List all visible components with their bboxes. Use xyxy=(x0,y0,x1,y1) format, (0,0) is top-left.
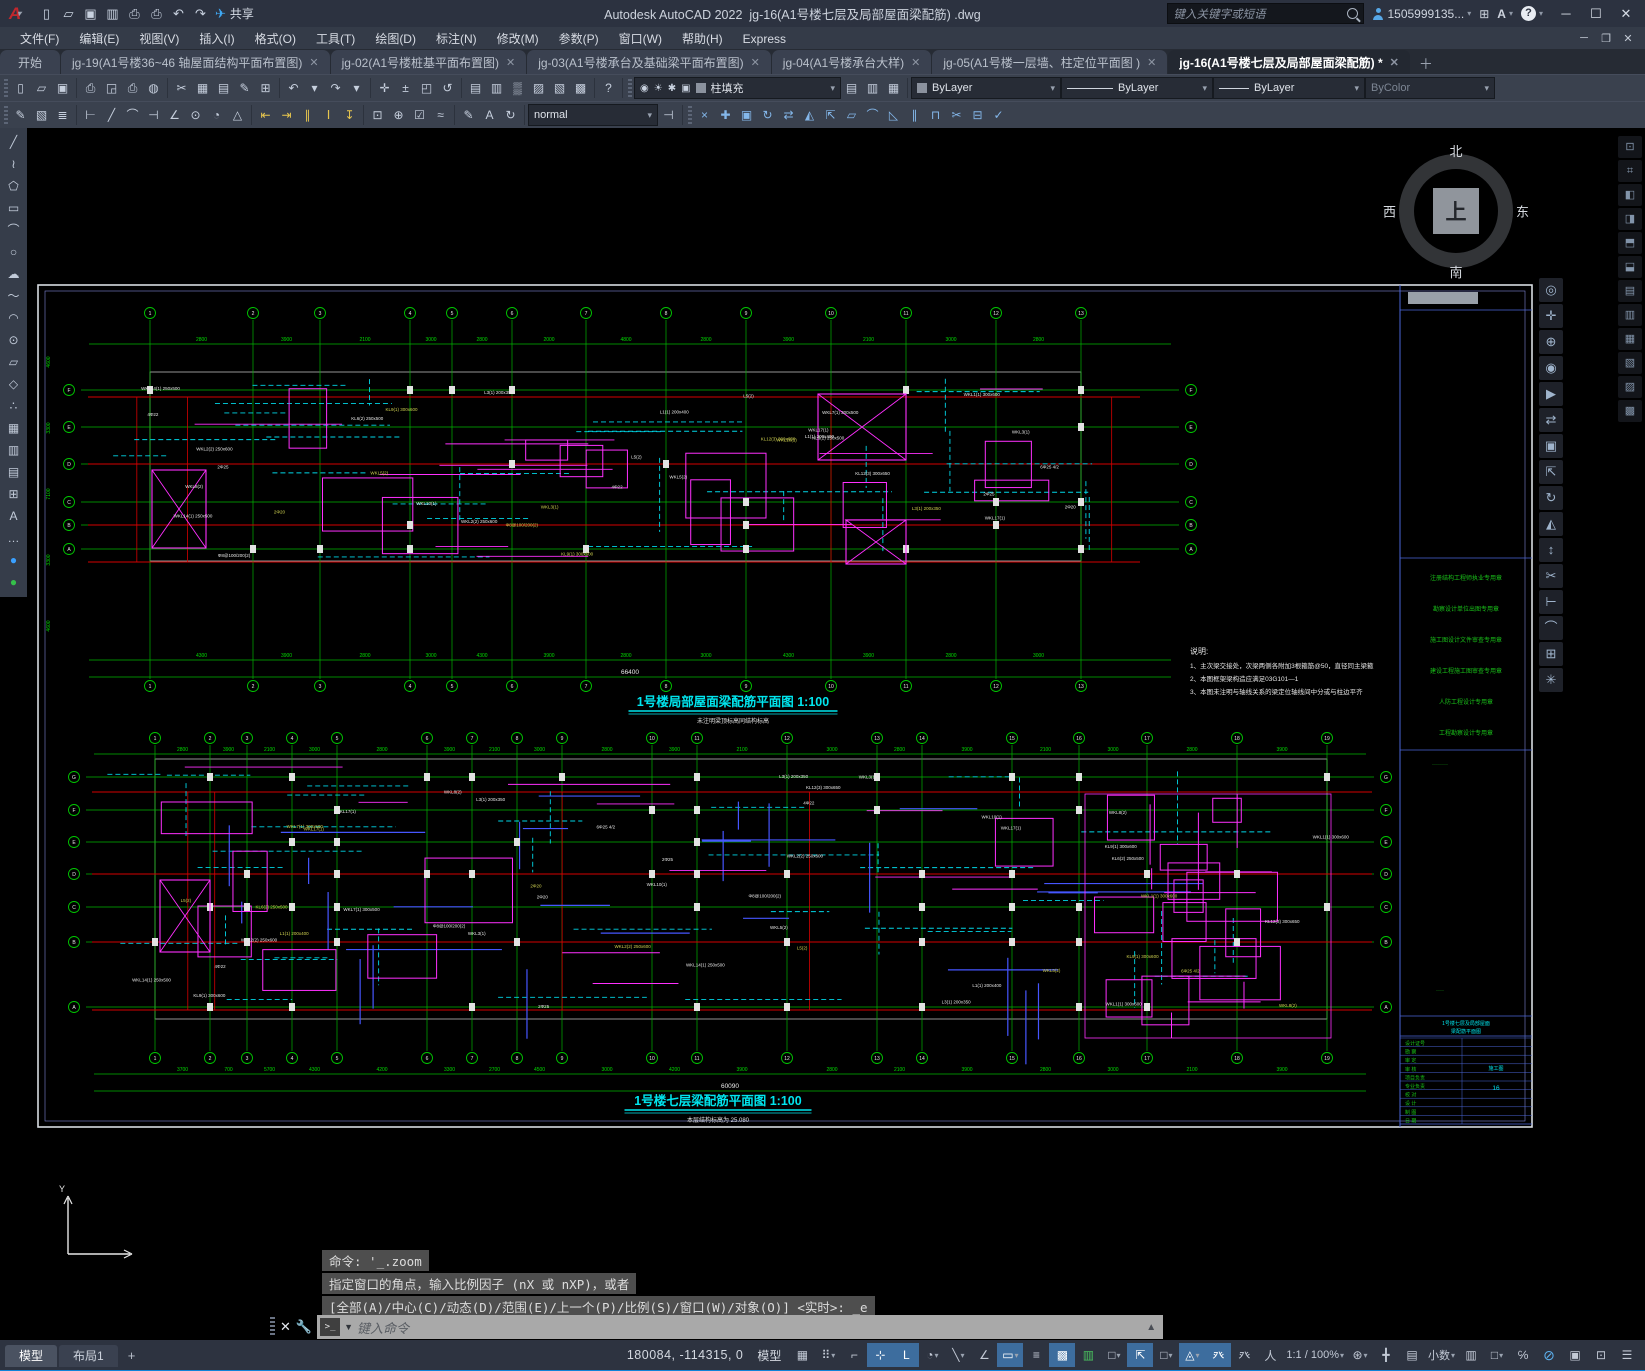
move-button[interactable]: ✚ xyxy=(715,105,736,126)
status-toggle-clean-screen[interactable]: ⊡ xyxy=(1588,1343,1614,1367)
close-button[interactable]: ✕ xyxy=(1611,6,1641,22)
open-button[interactable]: ▱ xyxy=(31,78,52,99)
zoom-previous-button[interactable]: ↺ xyxy=(437,78,458,99)
pan-hand-button[interactable]: ✛ xyxy=(1539,304,1563,328)
showmotion-button[interactable]: ▶ xyxy=(1539,382,1563,406)
nav-wheel-button[interactable]: ◎ xyxy=(1539,278,1563,302)
trim-button[interactable]: ⊓ xyxy=(925,105,946,126)
status-toggle-dynamic-ucs[interactable]: ⇱ xyxy=(1127,1343,1153,1367)
etransmit-button[interactable]: ◍ xyxy=(143,78,164,99)
status-toggle-gizmo[interactable]: ◬▾ xyxy=(1179,1343,1205,1367)
pan-button[interactable]: ✛ xyxy=(374,78,395,99)
mirror-button[interactable]: ⇄ xyxy=(778,105,799,126)
doc-tab-label: jg-03(A1号楼承台及基础梁平面布置图) xyxy=(538,54,743,71)
stretch-button[interactable]: ⇱ xyxy=(820,105,841,126)
svg-text:9: 9 xyxy=(745,684,748,690)
insert-block-tool[interactable]: ▱ xyxy=(2,352,25,373)
rectangle-tool[interactable]: ▭ xyxy=(2,198,25,219)
toolbar-grip[interactable] xyxy=(688,106,692,124)
status-toggle-units[interactable]: 小数▾ xyxy=(1425,1343,1458,1367)
close-icon[interactable]: ✕ xyxy=(280,1319,291,1335)
svg-text:4300: 4300 xyxy=(783,653,794,659)
layer-on-icon: ◉ xyxy=(640,83,649,94)
layer-prev-button[interactable]: ▤ xyxy=(841,78,862,99)
layer-dropdown[interactable]: ◉☀✱▣柱填充▾ xyxy=(634,77,841,99)
panel-8-button[interactable]: ▥ xyxy=(1618,304,1642,326)
compass-south-label[interactable]: 南 xyxy=(1449,262,1462,281)
svg-text:4800: 4800 xyxy=(620,337,631,343)
toolbar-separator xyxy=(622,78,623,98)
lineweight-dropdown[interactable]: ByLayer▾ xyxy=(1213,77,1365,99)
quick-properties-icon: ▥ xyxy=(1465,1348,1476,1362)
doc-restore[interactable]: ❐ xyxy=(1595,32,1617,45)
status-toggle-3dosnap[interactable]: □▾ xyxy=(1101,1343,1127,1367)
tab-close-icon[interactable]: ✕ xyxy=(751,56,760,69)
share-button[interactable]: ✈ 共享 xyxy=(215,5,254,22)
matchprop-button[interactable]: ✎ xyxy=(234,78,255,99)
minimize-button[interactable]: ─ xyxy=(1551,6,1581,21)
tolerance-button[interactable]: ⊕ xyxy=(388,105,409,126)
help-button[interactable]: ? xyxy=(598,78,619,99)
status-toggle-polar[interactable]: ◔▾ xyxy=(919,1343,945,1367)
panel-10-button[interactable]: ▧ xyxy=(1618,352,1642,374)
customize-menu-icon: ☰ xyxy=(1622,1348,1633,1362)
scale-button[interactable]: ↕ xyxy=(1539,538,1563,562)
svg-text:5: 5 xyxy=(451,311,454,317)
ellipse-arc-tool[interactable]: ⊙ xyxy=(2,330,25,351)
svg-text:审 核: 审 核 xyxy=(1405,1066,1416,1073)
selection-filter-icon: □ xyxy=(1160,1348,1167,1362)
status-toggle-annotation-scale[interactable]: 1:1 / 100%▾ xyxy=(1283,1343,1347,1367)
new-tab-button[interactable]: ＋ xyxy=(1411,54,1441,74)
trim-button[interactable]: ✂ xyxy=(1539,564,1563,588)
region-tool[interactable]: ▤ xyxy=(2,462,25,483)
edit-button[interactable]: ⊞ xyxy=(255,78,276,99)
erase-button[interactable]: × xyxy=(694,105,715,126)
status-toggle-selection-filter[interactable]: □▾ xyxy=(1153,1343,1179,1367)
chevron-down-icon: ▾ xyxy=(830,83,835,94)
tab-close-icon[interactable]: ✕ xyxy=(506,56,515,69)
dim-space-button[interactable]: ∥ xyxy=(297,105,318,126)
lineweight-icon: ≡ xyxy=(1033,1348,1040,1362)
zoom-window-button[interactable]: ◰ xyxy=(416,78,437,99)
new-layout-button[interactable]: + xyxy=(120,1346,144,1365)
panel-12-button[interactable]: ▩ xyxy=(1618,400,1642,422)
panel-1-button[interactable]: ⊡ xyxy=(1618,136,1642,158)
svg-text:3000: 3000 xyxy=(945,337,956,343)
status-toggle-annotation-monitor[interactable]: ╋ xyxy=(1373,1343,1399,1367)
panel-3-button[interactable]: ◧ xyxy=(1618,184,1642,206)
menu-帮助H[interactable]: 帮助(H) xyxy=(672,30,733,48)
doc-close[interactable]: ✕ xyxy=(1617,32,1639,45)
tab-close-icon[interactable]: ✕ xyxy=(309,56,318,69)
plot-button[interactable]: ⎙ xyxy=(80,78,101,99)
dim-diameter-button[interactable]: ◔ xyxy=(206,105,227,126)
command-bar-grip[interactable] xyxy=(270,1317,275,1337)
svg-text:3000: 3000 xyxy=(425,653,436,659)
dim-apply-button[interactable]: ⊣ xyxy=(658,105,679,126)
jog-line-button[interactable]: ≈ xyxy=(430,105,451,126)
dim-radius-button[interactable]: ⊙ xyxy=(185,105,206,126)
hatch-tool[interactable]: ▦ xyxy=(2,418,25,439)
svg-text:3000: 3000 xyxy=(309,747,320,753)
polygon-tool[interactable]: ⬠ xyxy=(2,176,25,197)
tab-close-icon[interactable]: ✕ xyxy=(1390,56,1399,69)
gradient-tool[interactable]: ▥ xyxy=(2,440,25,461)
zoom-plus-button[interactable]: ⊕ xyxy=(1539,330,1563,354)
status-toggle-quick-properties[interactable]: ▥ xyxy=(1458,1343,1484,1367)
svg-text:3900: 3900 xyxy=(444,747,455,753)
open-file-icon[interactable]: ▱ xyxy=(58,6,79,22)
dim-update-button[interactable]: ↧ xyxy=(339,105,360,126)
ellipse-tool[interactable]: ◠ xyxy=(2,308,25,329)
markup-button[interactable]: ▧ xyxy=(549,78,570,99)
status-toggle-isolate[interactable]: ℅ xyxy=(1510,1343,1536,1367)
svg-text:2800: 2800 xyxy=(359,653,370,659)
menu-文件F[interactable]: 文件(F) xyxy=(10,30,69,48)
menu-修改M[interactable]: 修改(M) xyxy=(487,30,549,48)
svg-text:16: 16 xyxy=(1076,1056,1082,1062)
status-toggle-osnap[interactable]: ▭▾ xyxy=(997,1343,1023,1367)
dim-angular-button[interactable]: ∠ xyxy=(164,105,185,126)
status-toggle-otrack[interactable]: ∠ xyxy=(971,1343,997,1367)
svg-text:施工图: 施工图 xyxy=(1488,1065,1503,1072)
dim-baseline-button[interactable]: ⇤ xyxy=(255,105,276,126)
status-toggle-customize-menu[interactable]: ☰ xyxy=(1614,1343,1640,1367)
dim-linear-button[interactable]: ⊢ xyxy=(80,105,101,126)
menu-窗口W[interactable]: 窗口(W) xyxy=(609,30,672,48)
redo-car-button[interactable]: ▾ xyxy=(346,78,367,99)
doc-tab-1[interactable]: jg-19(A1号楼36~46 轴屋面结构平面布置图)✕ xyxy=(61,50,330,74)
offset-button[interactable]: ∥ xyxy=(904,105,925,126)
inspect-button[interactable]: ☑ xyxy=(409,105,430,126)
chevron-down-icon: ▾ xyxy=(1116,1351,1120,1360)
circle-tool[interactable]: ○ xyxy=(2,242,25,263)
orbit-button[interactable]: ◉ xyxy=(1539,356,1563,380)
svg-text:3000: 3000 xyxy=(1107,747,1118,753)
color-chip xyxy=(917,83,927,93)
sheetset-button[interactable]: ▨ xyxy=(528,78,549,99)
svg-text:2100: 2100 xyxy=(894,1067,905,1073)
svg-text:7100: 7100 xyxy=(46,488,52,499)
svg-text:3900: 3900 xyxy=(669,747,680,753)
search-placeholder: 键入关键字或短语 xyxy=(1173,6,1265,22)
svg-text:3900: 3900 xyxy=(783,337,794,343)
svg-text:11: 11 xyxy=(903,684,908,690)
dim-style-mgr-button[interactable]: ≣ xyxy=(52,105,73,126)
svg-text:C: C xyxy=(72,905,76,911)
doc-tab-0[interactable]: 开始 xyxy=(0,50,60,74)
undo-icon[interactable]: ↶ xyxy=(168,6,189,22)
cad-canvas[interactable]: 注册结构工程师执业专用章勘察设计单位出图专用章施工图设计文件审查专用章建设工程施… xyxy=(0,128,1645,1340)
status-toggle-clean-screen-check[interactable]: ▣ xyxy=(1562,1343,1588,1367)
dim-edit2-button[interactable]: ✎ xyxy=(458,105,479,126)
view-compass[interactable]: 北 南 西 东 上 xyxy=(1389,144,1523,278)
dim-textedit-button[interactable]: A xyxy=(479,105,500,126)
doc-minimize[interactable]: ─ xyxy=(1573,32,1595,45)
doc-tab-6[interactable]: jg-16(A1号楼七层及局部屋面梁配筋) *✕ xyxy=(1168,50,1410,74)
green-dot[interactable]: ● xyxy=(2,572,25,593)
doc-tab-2[interactable]: jg-02(A1号楼桩基平面布置图)✕ xyxy=(331,50,527,74)
svg-text:3700: 3700 xyxy=(177,1067,188,1073)
app-store-button[interactable]: ⊞ xyxy=(1479,7,1489,21)
center-mark-button[interactable]: ⊡ xyxy=(367,105,388,126)
svg-text:说明:: 说明: xyxy=(1190,646,1208,656)
svg-text:3: 3 xyxy=(319,311,322,317)
compass-west-label[interactable]: 西 xyxy=(1383,202,1396,221)
cut-button[interactable]: ✂ xyxy=(171,78,192,99)
help-menu[interactable]: ?▾ xyxy=(1521,6,1543,21)
status-toggle-annotation[interactable]: 人 xyxy=(1257,1343,1283,1367)
svg-text:16: 16 xyxy=(1492,1085,1500,1092)
status-toggle-ortho[interactable]: L xyxy=(893,1343,919,1367)
properties-button[interactable]: ▤ xyxy=(465,78,486,99)
dim-break-button[interactable]: Ⅰ xyxy=(318,105,339,126)
status-toggle-lock-ui[interactable]: □▾ xyxy=(1484,1343,1510,1367)
svg-text:15: 15 xyxy=(1009,736,1015,742)
svg-text:人防工程设计专用章: 人防工程设计专用章 xyxy=(1439,698,1493,706)
mtext-tool[interactable]: A xyxy=(2,506,25,527)
save-file-icon[interactable]: ▣ xyxy=(80,6,101,22)
explode-button[interactable]: ✓ xyxy=(988,105,1009,126)
svg-text:2800: 2800 xyxy=(476,337,487,343)
copy-button[interactable]: ▣ xyxy=(736,105,757,126)
svg-text:WKL10(1): WKL10(1) xyxy=(647,882,668,887)
autodesk-a-button[interactable]: A▾ xyxy=(1497,7,1513,21)
svg-text:G: G xyxy=(1384,775,1388,781)
status-toggle-snap[interactable]: ⠿▾ xyxy=(815,1343,841,1367)
toolbar-separator xyxy=(167,78,168,98)
svg-text:梁配筋平面图: 梁配筋平面图 xyxy=(1451,1028,1481,1035)
menu-视图V[interactable]: 视图(V) xyxy=(129,30,189,48)
status-toggle-lineweight[interactable]: ≡ xyxy=(1023,1343,1049,1367)
chevron-down-icon[interactable]: ▼ xyxy=(344,1322,353,1332)
doc-tab-5[interactable]: jg-05(A1号楼一层墙、柱定位平面图 )✕ xyxy=(932,50,1167,74)
mirror-button[interactable]: ◭ xyxy=(1539,512,1563,536)
svg-text:7: 7 xyxy=(585,684,588,690)
tab-close-icon[interactable]: ✕ xyxy=(911,56,920,69)
join-button[interactable]: ⊟ xyxy=(967,105,988,126)
svg-text:2Φ25: 2Φ25 xyxy=(983,492,995,497)
break-button[interactable]: ✂ xyxy=(946,105,967,126)
panel-6-button[interactable]: ⬓ xyxy=(1618,256,1642,278)
redo-icon[interactable]: ↷ xyxy=(190,6,211,22)
doc-tab-3[interactable]: jg-03(A1号楼承台及基础梁平面布置图)✕ xyxy=(527,50,771,74)
menu-Express[interactable]: Express xyxy=(733,30,796,48)
status-toggle-graphics-perf[interactable]: ⊘ xyxy=(1536,1343,1562,1367)
wrench-icon[interactable]: 🔧 xyxy=(296,1319,312,1335)
linetype-sample xyxy=(1067,88,1113,89)
doc-tab-label: jg-02(A1号楼桩基平面布置图) xyxy=(342,54,499,71)
layer-match-button[interactable]: ▥ xyxy=(862,78,883,99)
svg-text:3: 3 xyxy=(246,736,249,742)
svg-text:L3(1) 200x350: L3(1) 200x350 xyxy=(912,506,942,511)
toolbar-separator xyxy=(682,105,683,125)
array-button[interactable]: ⊞ xyxy=(1539,642,1563,666)
status-toggle-transparency[interactable]: ▩ xyxy=(1049,1343,1075,1367)
command-input[interactable]: >_ ▼ 键入命令 ▲ xyxy=(317,1315,1163,1339)
undo-button[interactable]: ↶ xyxy=(283,78,304,99)
point-tool[interactable]: ∴ xyxy=(2,396,25,417)
dim-text-button[interactable]: ▧ xyxy=(31,105,52,126)
svg-text:2、本图框架梁构造应满足03G101—1: 2、本图框架梁构造应满足03G101—1 xyxy=(1190,674,1299,683)
line-tool[interactable]: ╱ xyxy=(2,132,25,153)
navigation-toolbar-right: ◎✛⊕◉▶⇄▣⇱↻◭↕✂⊢⌒⊞✳ xyxy=(1537,278,1565,692)
move-button[interactable]: ⇄ xyxy=(1539,408,1563,432)
model-space-button[interactable]: 模型 xyxy=(757,1347,781,1364)
copy-button[interactable]: ▣ xyxy=(1539,434,1563,458)
compass-north-label[interactable]: 北 xyxy=(1449,141,1462,160)
designcenter-button[interactable]: ▥ xyxy=(486,78,507,99)
status-toggle-annotation-vis[interactable]: 癶 xyxy=(1205,1343,1231,1367)
rotate-button[interactable]: ↻ xyxy=(1539,486,1563,510)
svg-text:2800: 2800 xyxy=(945,653,956,659)
blue-dot[interactable]: ● xyxy=(2,550,25,571)
svg-text:WKL8(2): WKL8(2) xyxy=(185,484,203,489)
svg-text:13: 13 xyxy=(874,736,880,742)
dim-arc-button[interactable]: ⌒ xyxy=(122,105,143,126)
arc-tool[interactable]: ⌒ xyxy=(2,220,25,241)
status-toggle-autoscale[interactable]: 癶 xyxy=(1231,1343,1257,1367)
linetype-dropdown[interactable]: ByLayer▾ xyxy=(1061,77,1213,99)
new-button[interactable]: ▯ xyxy=(10,78,31,99)
panel-11-button[interactable]: ▨ xyxy=(1618,376,1642,398)
fillet-button[interactable]: ⌒ xyxy=(862,105,883,126)
toolbar-grip[interactable] xyxy=(4,79,8,97)
autocad-logo-icon[interactable]: A▾ xyxy=(0,0,30,27)
svg-text:12: 12 xyxy=(993,684,999,690)
status-toggle-dyn-input[interactable]: ⊹ xyxy=(867,1343,893,1367)
compass-top-face[interactable]: 上 xyxy=(1433,188,1479,234)
layout-tab-模型[interactable]: 模型 xyxy=(5,1345,57,1367)
svg-text:6Φ25 4/2: 6Φ25 4/2 xyxy=(597,824,616,829)
paste-button[interactable]: ▤ xyxy=(213,78,234,99)
more-tool[interactable]: … xyxy=(2,528,25,549)
table-tool[interactable]: ⊞ xyxy=(2,484,25,505)
search-input[interactable]: 键入关键字或短语 xyxy=(1167,3,1364,24)
svg-text:L3(1) 200x350: L3(1) 200x350 xyxy=(476,797,506,802)
menu-工具T[interactable]: 工具(T) xyxy=(306,30,365,48)
dim-edit-button[interactable]: ✎ xyxy=(10,105,31,126)
window-title: Autodesk AutoCAD 2022 jg-16(A1号楼七层及局部屋面梁… xyxy=(604,4,981,23)
svg-text:3300: 3300 xyxy=(46,554,52,565)
save-as-icon[interactable]: ▥ xyxy=(102,6,123,22)
print-icon[interactable]: ⎙ xyxy=(146,6,167,22)
status-toggle-workspace[interactable]: ⊛▾ xyxy=(1347,1343,1373,1367)
spline-tool[interactable]: 〜 xyxy=(2,286,25,307)
status-toggle-units-icon[interactable]: ▤ xyxy=(1399,1343,1425,1367)
qcalc-button[interactable]: ▩ xyxy=(570,78,591,99)
dim-continue-button[interactable]: ⇥ xyxy=(276,105,297,126)
zoom-realtime-button[interactable]: ± xyxy=(395,78,416,99)
stretch-button[interactable]: ⇱ xyxy=(1539,460,1563,484)
revcloud-tool[interactable]: ☁ xyxy=(2,264,25,285)
plot-icon[interactable]: ⎙ xyxy=(124,6,145,22)
panel-5-button[interactable]: ⬒ xyxy=(1618,232,1642,254)
graphics-perf-icon: ⊘ xyxy=(1543,1347,1555,1364)
color-dropdown[interactable]: ByLayer▾ xyxy=(911,77,1061,99)
make-block-tool[interactable]: ◇ xyxy=(2,374,25,395)
explode-button[interactable]: ✳ xyxy=(1539,668,1563,692)
dim-jogged-button[interactable]: △ xyxy=(227,105,248,126)
copy-button[interactable]: ▦ xyxy=(192,78,213,99)
dim-refresh-button[interactable]: ↻ xyxy=(500,105,521,126)
svg-text:WKL1(1) 300x600: WKL1(1) 300x600 xyxy=(1141,893,1178,898)
publish-button[interactable]: ⎙ xyxy=(122,78,143,99)
svg-text:项目负责: 项目负责 xyxy=(1405,1074,1425,1081)
svg-text:4600: 4600 xyxy=(46,620,52,631)
window-controls: ─☐✕ xyxy=(1551,6,1641,22)
svg-text:3900: 3900 xyxy=(736,1067,747,1073)
fillet-button[interactable]: ⌒ xyxy=(1539,616,1563,640)
tab-close-icon[interactable]: ✕ xyxy=(1147,56,1156,69)
status-toggle-infer[interactable]: ⌐ xyxy=(841,1343,867,1367)
panel-4-button[interactable]: ◨ xyxy=(1618,208,1642,230)
scroll-up-icon[interactable]: ▲ xyxy=(1146,1322,1160,1333)
units-icon-icon: ▤ xyxy=(1406,1348,1417,1362)
search-icon[interactable] xyxy=(1347,8,1358,19)
dim-aligned-button[interactable]: ╱ xyxy=(101,105,122,126)
layer-freeze-icon: ✱ xyxy=(668,83,676,94)
layer-thaw-icon: ☀ xyxy=(654,83,663,94)
menu-参数P[interactable]: 参数(P) xyxy=(549,30,609,48)
redo-button[interactable]: ↷ xyxy=(325,78,346,99)
svg-text:F: F xyxy=(72,808,75,814)
undo-car-button[interactable]: ▾ xyxy=(304,78,325,99)
preview-button[interactable]: ◲ xyxy=(101,78,122,99)
svg-text:KL9(1) 300x600: KL9(1) 300x600 xyxy=(193,993,226,998)
panel-2-button[interactable]: ⌗ xyxy=(1618,160,1642,182)
doc-tab-4[interactable]: jg-04(A1号楼承台大样)✕ xyxy=(772,50,932,74)
doc-tab-label: jg-04(A1号楼承台大样) xyxy=(783,54,904,71)
panel-9-button[interactable]: ▦ xyxy=(1618,328,1642,350)
menu-编辑E[interactable]: 编辑(E) xyxy=(69,30,129,48)
rotate-button[interactable]: ↻ xyxy=(757,105,778,126)
scale-button[interactable]: ◭ xyxy=(799,105,820,126)
dimstyle-dropdown[interactable]: normal▾ xyxy=(528,104,658,126)
account-menu[interactable]: 1505999135... ▾ xyxy=(1372,7,1471,21)
menu-绘图D[interactable]: 绘图(D) xyxy=(365,30,426,48)
svg-text:C: C xyxy=(1189,500,1193,506)
status-toggle-grid[interactable]: ▦ xyxy=(789,1343,815,1367)
maximize-button[interactable]: ☐ xyxy=(1581,6,1611,22)
share-label: 共享 xyxy=(230,5,254,22)
toolpalettes-button[interactable]: ▒ xyxy=(507,78,528,99)
save-button[interactable]: ▣ xyxy=(52,78,73,99)
array-button[interactable]: ▱ xyxy=(841,105,862,126)
svg-text:2100: 2100 xyxy=(863,337,874,343)
panel-7-button[interactable]: ▤ xyxy=(1618,280,1642,302)
status-toggle-isodraft[interactable]: ╲▾ xyxy=(945,1343,971,1367)
svg-text:WKL8(2): WKL8(2) xyxy=(1279,1003,1297,1008)
polyline-tool[interactable]: ≀ xyxy=(2,154,25,175)
toolbar-grip[interactable] xyxy=(4,106,8,124)
new-file-icon[interactable]: ▯ xyxy=(36,6,57,22)
menu-标注N[interactable]: 标注(N) xyxy=(426,30,487,48)
status-bar: 模型布局1 + 180084, -114315, 0 模型 ▦⠿▾⌐⊹L◔▾╲▾… xyxy=(0,1340,1645,1370)
menu-格式O[interactable]: 格式(O) xyxy=(245,30,306,48)
layout-tab-布局1[interactable]: 布局1 xyxy=(59,1345,118,1367)
chamfer-button[interactable]: ◺ xyxy=(883,105,904,126)
status-toggle-selection-cycling[interactable]: ▥ xyxy=(1075,1343,1101,1367)
toolbar-grip[interactable] xyxy=(628,79,632,97)
svg-text:WKL2(2) 250x600: WKL2(2) 250x600 xyxy=(461,519,498,524)
extend-button[interactable]: ⊢ xyxy=(1539,590,1563,614)
layer-states-button[interactable]: ▦ xyxy=(883,78,904,99)
compass-east-label[interactable]: 东 xyxy=(1516,202,1529,221)
dim-ordinate-button[interactable]: ⊣ xyxy=(143,105,164,126)
menu-插入I[interactable]: 插入(I) xyxy=(189,30,244,48)
